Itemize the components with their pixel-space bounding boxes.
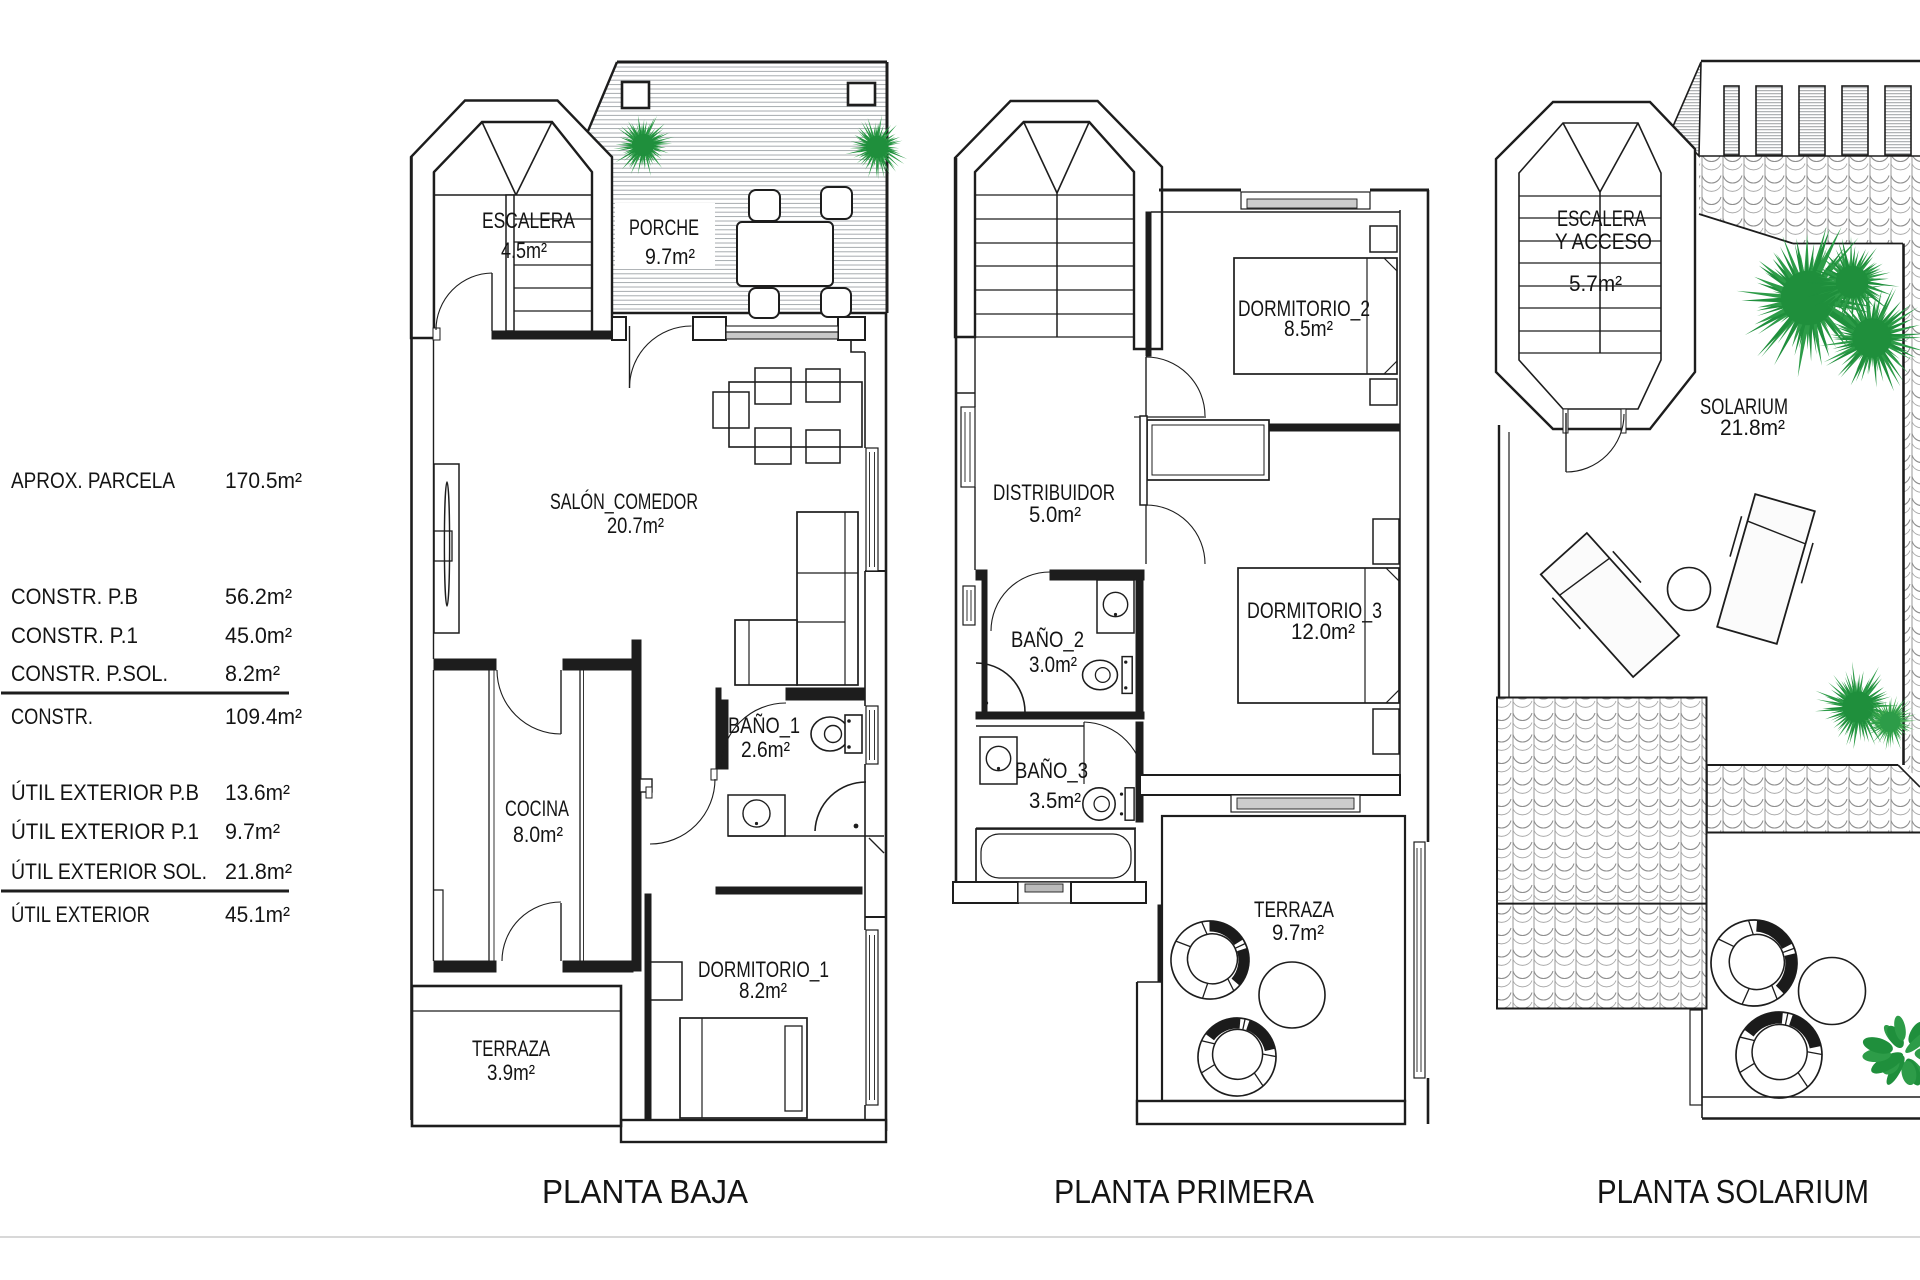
svg-text:ÚTIL EXTERIOR SOL.: ÚTIL EXTERIOR SOL. [11,859,207,884]
svg-text:PLANTA BAJA: PLANTA BAJA [542,1173,748,1210]
svg-text:170.5m²: 170.5m² [225,468,302,493]
svg-text:Y ACCESO: Y ACCESO [1555,229,1652,254]
svg-text:9.7m²: 9.7m² [225,819,280,844]
svg-text:PLANTA PRIMERA: PLANTA PRIMERA [1054,1173,1314,1210]
svg-text:8.0m²: 8.0m² [513,822,563,847]
svg-text:CONSTR. P.SOL.: CONSTR. P.SOL. [11,661,168,686]
svg-text:5.7m²: 5.7m² [1569,271,1622,296]
svg-text:13.6m²: 13.6m² [225,780,290,805]
svg-text:8.5m²: 8.5m² [1284,316,1333,341]
svg-text:ESCALERA: ESCALERA [482,208,575,233]
svg-text:3.0m²: 3.0m² [1029,652,1077,677]
svg-text:5.0m²: 5.0m² [1029,502,1081,527]
svg-text:45.1m²: 45.1m² [225,902,290,927]
svg-text:PORCHE: PORCHE [629,215,699,240]
svg-text:109.4m²: 109.4m² [225,704,302,729]
svg-text:TERRAZA: TERRAZA [1254,897,1334,922]
svg-text:APROX. PARCELA: APROX. PARCELA [11,468,175,493]
svg-text:4.5m²: 4.5m² [501,238,547,263]
svg-text:BAÑO_2: BAÑO_2 [1011,627,1084,652]
svg-text:3.9m²: 3.9m² [487,1060,535,1085]
svg-text:PLANTA SOLARIUM: PLANTA SOLARIUM [1597,1173,1869,1210]
svg-text:TERRAZA: TERRAZA [472,1036,550,1061]
svg-text:CONSTR. P.1: CONSTR. P.1 [11,623,138,648]
svg-text:56.2m²: 56.2m² [225,584,292,609]
svg-text:8.2m²: 8.2m² [225,661,280,686]
svg-text:21.8m²: 21.8m² [1720,415,1785,440]
svg-text:8.2m²: 8.2m² [739,978,787,1003]
svg-text:21.8m²: 21.8m² [225,859,292,884]
svg-text:9.7m²: 9.7m² [645,244,695,269]
svg-text:9.7m²: 9.7m² [1272,920,1324,945]
svg-text:BAÑO_3: BAÑO_3 [1015,758,1088,783]
svg-text:ESCALERA: ESCALERA [1557,206,1646,231]
svg-text:SALÓN_COMEDOR: SALÓN_COMEDOR [550,489,698,514]
svg-text:ÚTIL EXTERIOR: ÚTIL EXTERIOR [11,902,150,927]
svg-text:ÚTIL EXTERIOR P.1: ÚTIL EXTERIOR P.1 [11,819,199,844]
svg-text:20.7m²: 20.7m² [607,513,664,538]
svg-text:ÚTIL EXTERIOR P.B: ÚTIL EXTERIOR P.B [11,780,199,805]
svg-text:CONSTR.: CONSTR. [11,704,93,729]
svg-text:12.0m²: 12.0m² [1291,619,1355,644]
svg-text:45.0m²: 45.0m² [225,623,292,648]
svg-text:2.6m²: 2.6m² [741,737,790,762]
svg-text:CONSTR. P.B: CONSTR. P.B [11,584,138,609]
svg-text:COCINA: COCINA [505,796,569,821]
svg-text:3.5m²: 3.5m² [1029,788,1081,813]
svg-text:BAÑO_1: BAÑO_1 [728,713,800,738]
